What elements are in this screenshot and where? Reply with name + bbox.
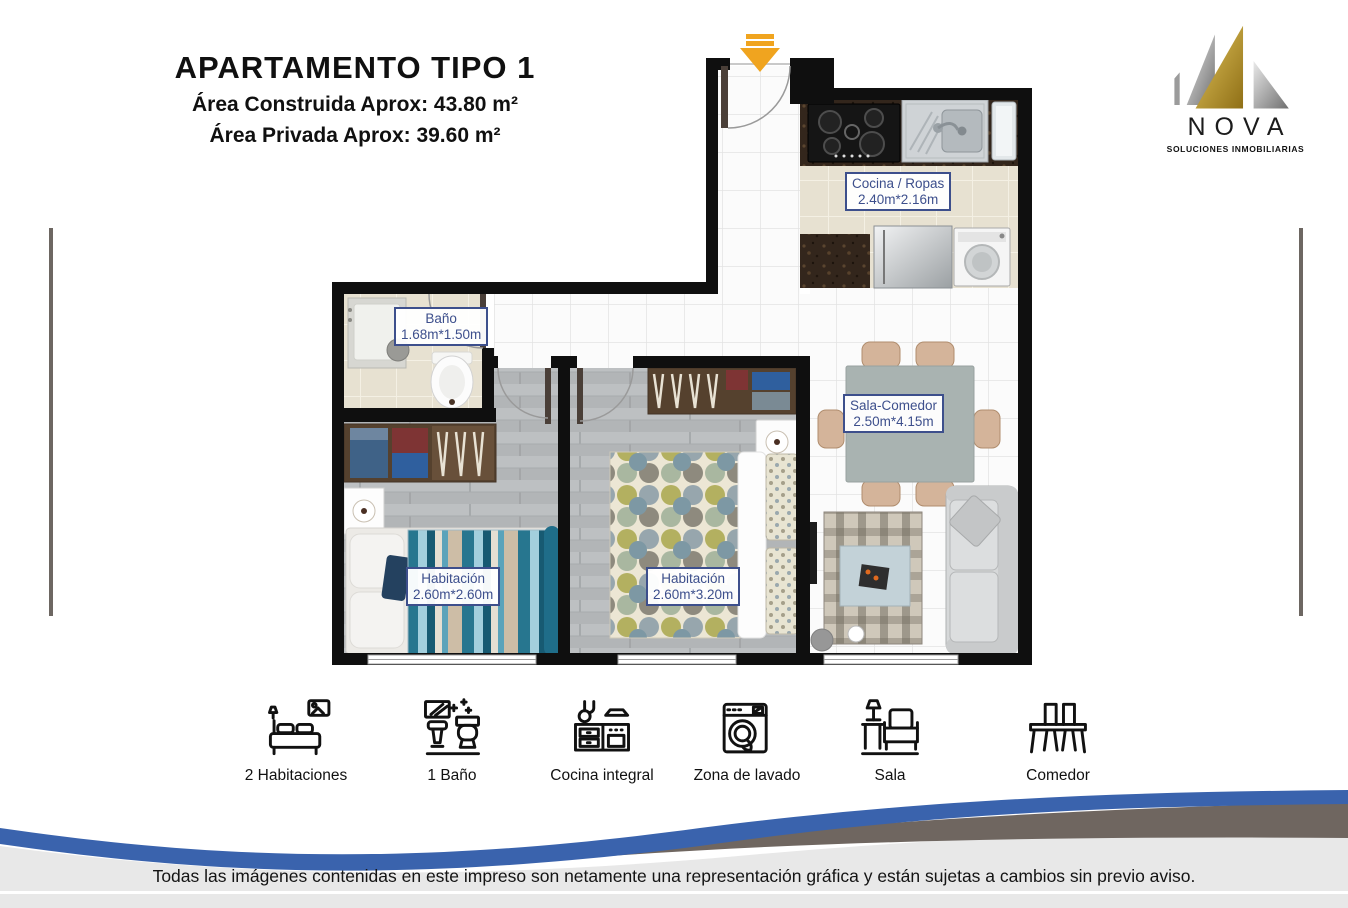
room-label-sala-comedor: Sala-Comedor 2.50m*4.15m: [843, 394, 944, 433]
kitchen-icon: [568, 697, 636, 761]
bathroom-icon: [418, 697, 486, 761]
bedroom2-closet: [648, 368, 796, 414]
disclaimer-text: Todas las imágenes contenidas en este im…: [0, 866, 1348, 887]
room-dims: 1.68m*1.50m: [401, 327, 481, 343]
amenity-label: 2 Habitaciones: [245, 767, 348, 785]
room-dims: 2.40m*2.16m: [852, 192, 944, 208]
amenity-sala: Sala: [815, 697, 965, 785]
room-dims: 2.60m*2.60m: [413, 587, 493, 603]
room-name: Cocina / Ropas: [852, 176, 944, 192]
amenity-label: Comedor: [1026, 767, 1090, 785]
washing-machine: [954, 228, 1010, 286]
windows: [368, 655, 958, 664]
rug-and-coffee-table: [824, 512, 922, 644]
amenity-habitaciones: 2 Habitaciones: [221, 697, 371, 785]
tv: [810, 522, 817, 584]
kitchen-sink: [902, 100, 988, 162]
bedroom1-door-leaf: [545, 368, 551, 424]
entrance-floor: [718, 66, 800, 294]
bottom-wave-decoration: [0, 788, 1348, 908]
bedroom1-closet: [344, 424, 496, 482]
room-dims: 2.50m*4.15m: [850, 414, 937, 430]
kitchen-counter-bottom: [800, 234, 870, 288]
room-name: Habitación: [653, 571, 733, 587]
room-label-habitacion-2: Habitación 2.60m*3.20m: [646, 567, 740, 606]
room-name: Habitación: [413, 571, 493, 587]
footer-separator-line: [0, 891, 1348, 894]
utility-basin: [992, 102, 1016, 160]
entrance-door-leaf: [721, 66, 728, 128]
room-label-bano: Baño 1.68m*1.50m: [394, 307, 488, 346]
amenity-comedor: Comedor: [983, 697, 1133, 785]
room-dims: 2.60m*3.20m: [653, 587, 733, 603]
toilet: [431, 352, 473, 408]
fridge: [874, 226, 952, 288]
flyer-page: APARTAMENTO TIPO 1 Área Construida Aprox…: [0, 0, 1348, 908]
amenity-lavado: Zona de lavado: [672, 697, 822, 785]
sofa: [946, 486, 1018, 654]
bedroom1-nightstand: [344, 488, 384, 534]
amenity-label: Zona de lavado: [694, 767, 801, 785]
amenity-label: Cocina integral: [550, 767, 653, 785]
room-label-habitacion-1: Habitación 2.60m*2.60m: [406, 567, 500, 606]
stove: [808, 104, 900, 162]
room-name: Baño: [401, 311, 481, 327]
laundry-icon: [713, 697, 781, 761]
amenity-label: 1 Baño: [427, 767, 476, 785]
bed-icon: [256, 697, 336, 761]
room-name: Sala-Comedor: [850, 398, 937, 414]
floor-lamp-base: [811, 629, 833, 651]
dining-icon: [1020, 697, 1096, 761]
amenity-cocina: Cocina integral: [527, 697, 677, 785]
amenity-bano: 1 Baño: [377, 697, 527, 785]
amenity-label: Sala: [874, 767, 905, 785]
sofa-icon: [852, 697, 928, 761]
bedroom2-door-leaf: [577, 368, 583, 424]
room-label-cocina: Cocina / Ropas 2.40m*2.16m: [845, 172, 951, 211]
